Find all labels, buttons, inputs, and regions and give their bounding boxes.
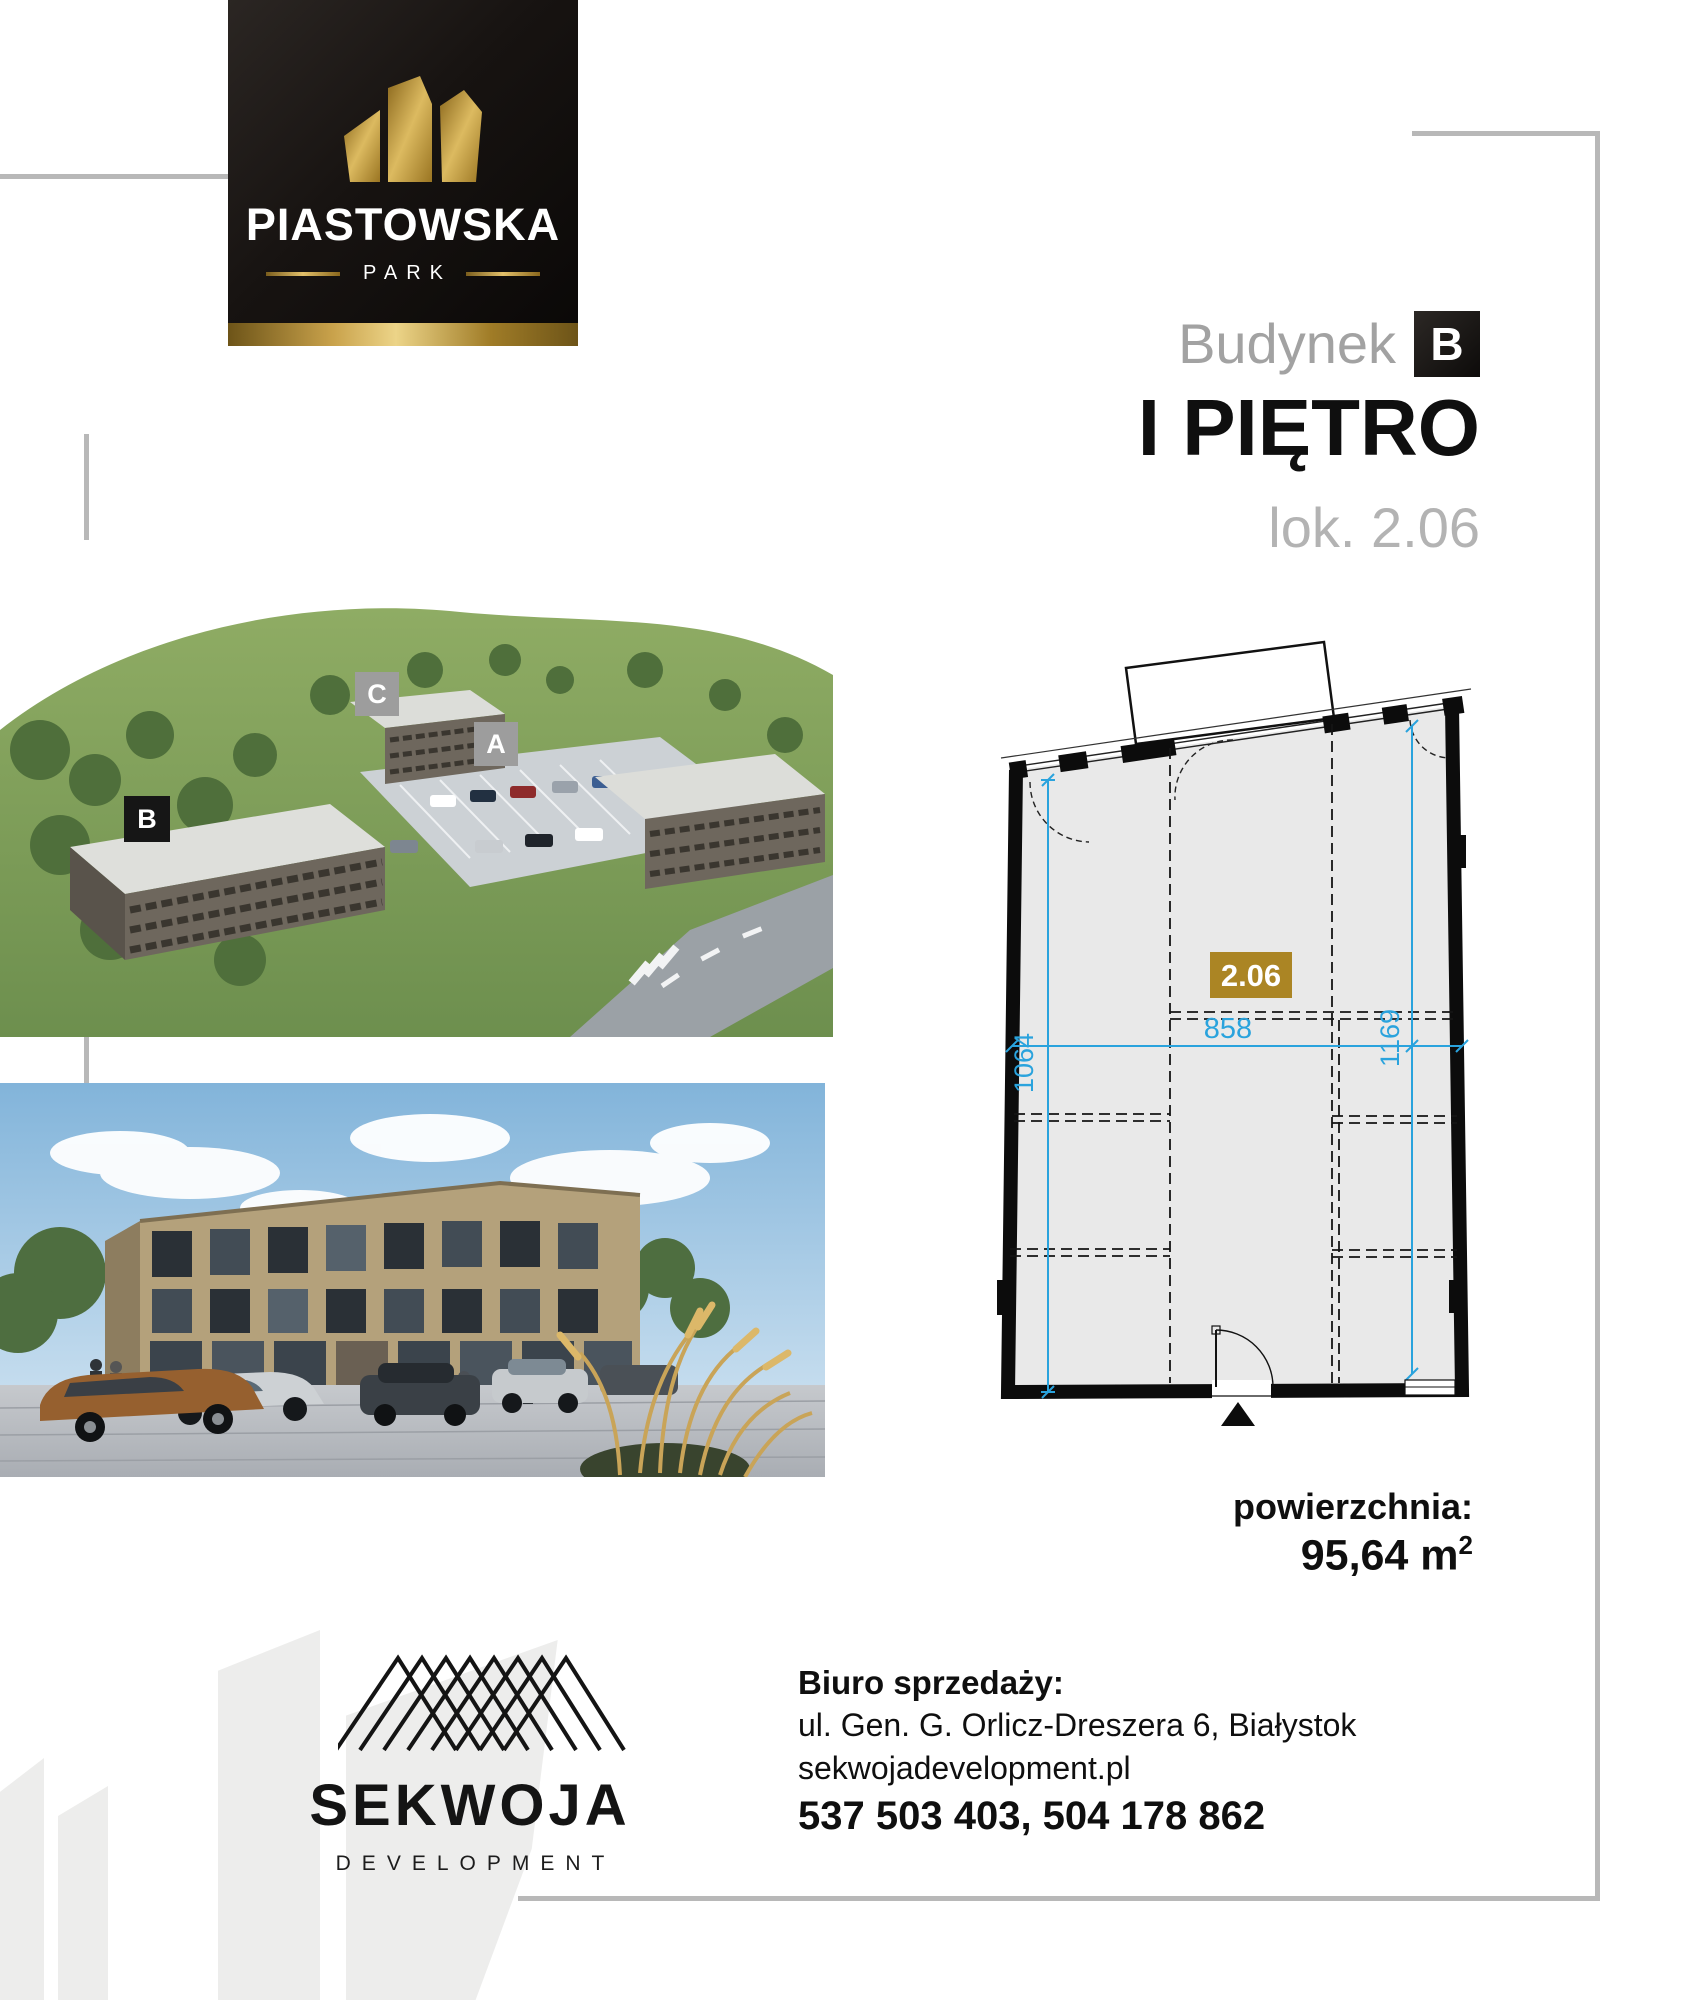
building-label: Budynek bbox=[1178, 310, 1396, 378]
gold-line-right bbox=[466, 272, 540, 276]
area-label: powierzchnia: bbox=[1233, 1486, 1473, 1528]
area-number: 95,64 m bbox=[1301, 1531, 1459, 1579]
flyer-page: PIASTOWSKA PARK Budynek B I PIĘTRO lok. … bbox=[0, 0, 1685, 2000]
building-watermark bbox=[58, 1786, 108, 2000]
frame-line-top-right bbox=[1412, 131, 1600, 136]
unit-number-label: 2.06 bbox=[1221, 958, 1281, 993]
entrance-triangle-icon bbox=[1221, 1402, 1255, 1426]
area-superscript: 2 bbox=[1459, 1530, 1473, 1560]
brand-card: PIASTOWSKA PARK bbox=[228, 0, 578, 346]
area-value: 95,64 m2 bbox=[1301, 1530, 1473, 1580]
frame-line-left-lower bbox=[84, 1037, 89, 1083]
contact-address: ul. Gen. G. Orlicz-Dreszera 6, Białystok bbox=[798, 1707, 1356, 1744]
brand-subtitle: PARK bbox=[354, 262, 452, 285]
contact-website: sekwojadevelopment.pl bbox=[798, 1750, 1131, 1787]
developer-subtitle: DEVELOPMENT bbox=[250, 1852, 690, 1876]
building-watermark bbox=[0, 1758, 44, 2000]
bottom-wall-window bbox=[1405, 1380, 1455, 1395]
site-label-a: A bbox=[474, 722, 518, 766]
developer-name: SEKWOJA bbox=[250, 1772, 690, 1839]
dim-left-label: 1064 bbox=[1009, 1033, 1039, 1093]
frame-line-bottom bbox=[518, 1896, 1600, 1901]
aerial-site-render bbox=[0, 540, 833, 1037]
frame-line-top-left bbox=[0, 174, 228, 179]
street-level-render bbox=[0, 1083, 825, 1477]
brand-gold-bar bbox=[228, 323, 578, 346]
header-building-row: Budynek B bbox=[1178, 310, 1480, 378]
contact-phones: 537 503 403, 504 178 862 bbox=[798, 1794, 1265, 1839]
dim-width-label: 858 bbox=[1204, 1013, 1252, 1045]
piastowska-towers-icon bbox=[328, 62, 488, 184]
unit-subtitle: lok. 2.06 bbox=[1268, 500, 1480, 556]
dim-right-label: 1169 bbox=[1375, 1009, 1405, 1067]
brand-title: PIASTOWSKA bbox=[228, 199, 578, 251]
floor-title: I PIĘTRO bbox=[1138, 388, 1480, 468]
contact-heading: Biuro sprzedaży: bbox=[798, 1664, 1064, 1702]
frame-line-right bbox=[1595, 131, 1600, 1901]
brand-subtitle-row: PARK bbox=[228, 262, 578, 285]
floor-plan: 858 1064 1169 2.06 bbox=[985, 630, 1490, 1440]
gold-line-left bbox=[266, 272, 340, 276]
sekwoja-roof-lattice-icon bbox=[338, 1654, 628, 1754]
building-letter-badge: B bbox=[1414, 311, 1480, 377]
site-label-b: B bbox=[124, 796, 170, 842]
site-label-c: C bbox=[355, 672, 399, 716]
